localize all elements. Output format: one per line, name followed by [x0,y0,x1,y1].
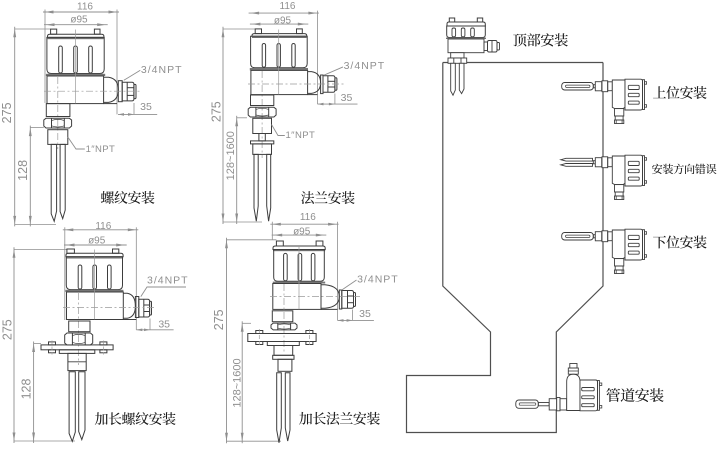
svg-text:128~1600: 128~1600 [225,131,237,180]
svg-text:116: 116 [77,2,93,13]
svg-text:275: 275 [1,319,15,340]
svg-text:128: 128 [19,379,33,400]
svg-text:3/4NPT: 3/4NPT [141,64,183,76]
svg-text:275: 275 [210,101,224,122]
svg-text:35: 35 [140,101,152,113]
svg-text:35: 35 [359,308,371,320]
svg-text:128: 128 [16,160,30,181]
svg-text:116: 116 [300,212,316,223]
svg-text:3/4NPT: 3/4NPT [357,274,399,286]
svg-text:ø95: ø95 [293,226,311,237]
svg-text:3/4NPT: 3/4NPT [147,274,189,286]
svg-text:1″NPT: 1″NPT [86,144,116,155]
svg-text:ø95: ø95 [274,16,292,27]
svg-text:35: 35 [341,92,353,104]
svg-text:ø95: ø95 [70,15,88,26]
svg-text:275: 275 [212,309,226,330]
svg-text:116: 116 [280,1,296,12]
svg-text:275: 275 [0,102,14,123]
svg-text:128~1600: 128~1600 [231,358,243,407]
svg-text:3/4NPT: 3/4NPT [344,60,386,72]
svg-text:116: 116 [95,221,111,232]
svg-text:1″NPT: 1″NPT [286,130,316,141]
svg-text:35: 35 [158,319,170,331]
